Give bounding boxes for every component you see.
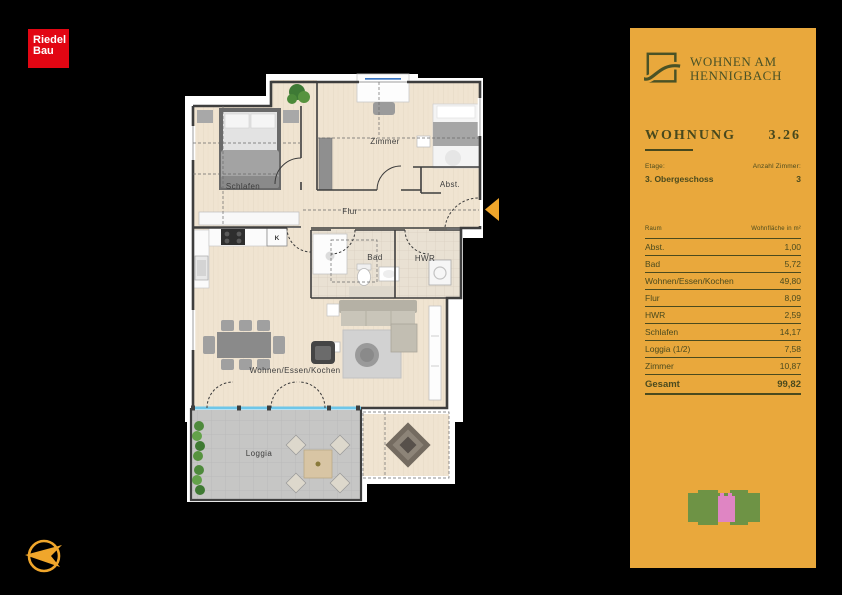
apartment-heading-label: WOHNUNG (645, 128, 736, 144)
riedel-bau-logo: Riedel Bau (28, 29, 69, 68)
row-room: Abst. (645, 242, 664, 252)
bed-schlafen (219, 108, 281, 190)
etage-value: 3. Obergeschoss (645, 174, 714, 184)
project-name: WOHNEN AM HENNIGBACH (690, 55, 782, 83)
row-room: Wohnen/Essen/Kochen (645, 276, 734, 286)
heading-rule (645, 149, 693, 151)
anzahl-zimmer-value: 3 (753, 174, 801, 184)
room-label-zimmer: Zimmer (370, 137, 400, 146)
washbasin (379, 267, 399, 281)
page: Riedel Bau (0, 0, 842, 595)
apartment-number: 3.26 (769, 128, 802, 144)
room-label-flur: Flur (342, 207, 357, 216)
room-label-abst: Abst. (440, 180, 460, 189)
project-name-line1: WOHNEN AM (690, 55, 782, 69)
wardrobe (319, 138, 332, 190)
row-area: 14,17 (780, 327, 801, 337)
riedel-logo-line2: Bau (33, 46, 69, 57)
tv-sideboard (429, 306, 441, 400)
stove (221, 229, 245, 245)
washing-machine (429, 260, 451, 285)
row-area: 10,87 (780, 361, 801, 371)
table-row: Abst. 1,00 (645, 239, 801, 256)
row-area: 5,72 (784, 259, 801, 269)
project-logo: WOHNEN AM HENNIGBACH (644, 50, 782, 88)
row-room: HWR (645, 310, 665, 320)
project-name-line2: HENNIGBACH (690, 69, 782, 83)
nightstand-left (197, 110, 213, 123)
room-label-loggia: Loggia (246, 449, 273, 458)
table-row: Bad 5,72 (645, 256, 801, 273)
total-value: 99,82 (777, 379, 801, 390)
row-room: Zimmer (645, 361, 674, 371)
table-row: Zimmer 10,87 (645, 358, 801, 375)
entrance-arrow-icon (485, 198, 499, 221)
table-row: Wohnen/Essen/Kochen 49,80 (645, 273, 801, 290)
total-label: Gesamt (645, 379, 680, 390)
apartment-heading: WOHNUNG 3.26 (645, 128, 801, 144)
col-raum: Raum (645, 226, 662, 232)
table-total-row: Gesamt 99,82 (645, 375, 801, 395)
armchair (311, 341, 335, 364)
dresser (199, 212, 299, 225)
table-row: Schlafen 14,17 (645, 324, 801, 341)
site-unit-highlight (718, 493, 735, 522)
row-area: 1,00 (784, 242, 801, 252)
row-room: Bad (645, 259, 660, 269)
anzahl-zimmer-label: Anzahl Zimmer: (753, 163, 801, 170)
room-label-hwr: HWR (415, 254, 435, 263)
nightstand-right (283, 110, 299, 123)
row-room: Schlafen (645, 327, 678, 337)
bad-vanity (349, 286, 395, 297)
wave-square-icon (644, 50, 682, 88)
table-row: HWR 2,59 (645, 307, 801, 324)
room-label-bad: Bad (367, 253, 382, 262)
room-label-schlafen: Schlafen (226, 182, 260, 191)
table-row: Flur 8,09 (645, 290, 801, 307)
row-area: 8,09 (784, 293, 801, 303)
north-arrow-icon (18, 530, 74, 586)
table-row: Loggia (1/2) 7,58 (645, 341, 801, 358)
area-table-header: Raum Wohnfläche in m² (645, 226, 801, 239)
row-room: Flur (645, 293, 660, 303)
row-room: Loggia (1/2) (645, 344, 690, 354)
kitchen-marker: K (275, 235, 280, 242)
info-panel: WOHNEN AM HENNIGBACH WOHNUNG 3.26 Etage:… (630, 28, 816, 568)
site-plan (678, 484, 770, 534)
row-area: 7,58 (784, 344, 801, 354)
apartment-meta: Etage: 3. Obergeschoss Anzahl Zimmer: 3 (645, 163, 801, 184)
row-area: 49,80 (780, 276, 801, 286)
col-wohnflaeche: Wohnfläche in m² (751, 226, 801, 232)
room-label-wohnen: Wohnen/Essen/Kochen (249, 366, 340, 375)
etage-label: Etage: (645, 163, 714, 170)
row-area: 2,59 (784, 310, 801, 320)
area-table: Raum Wohnfläche in m² Abst. 1,00 Bad 5,7… (645, 226, 801, 395)
floor-plan: Schlafen Zimmer Abst. Flur Bad HWR Wohne… (183, 70, 501, 502)
